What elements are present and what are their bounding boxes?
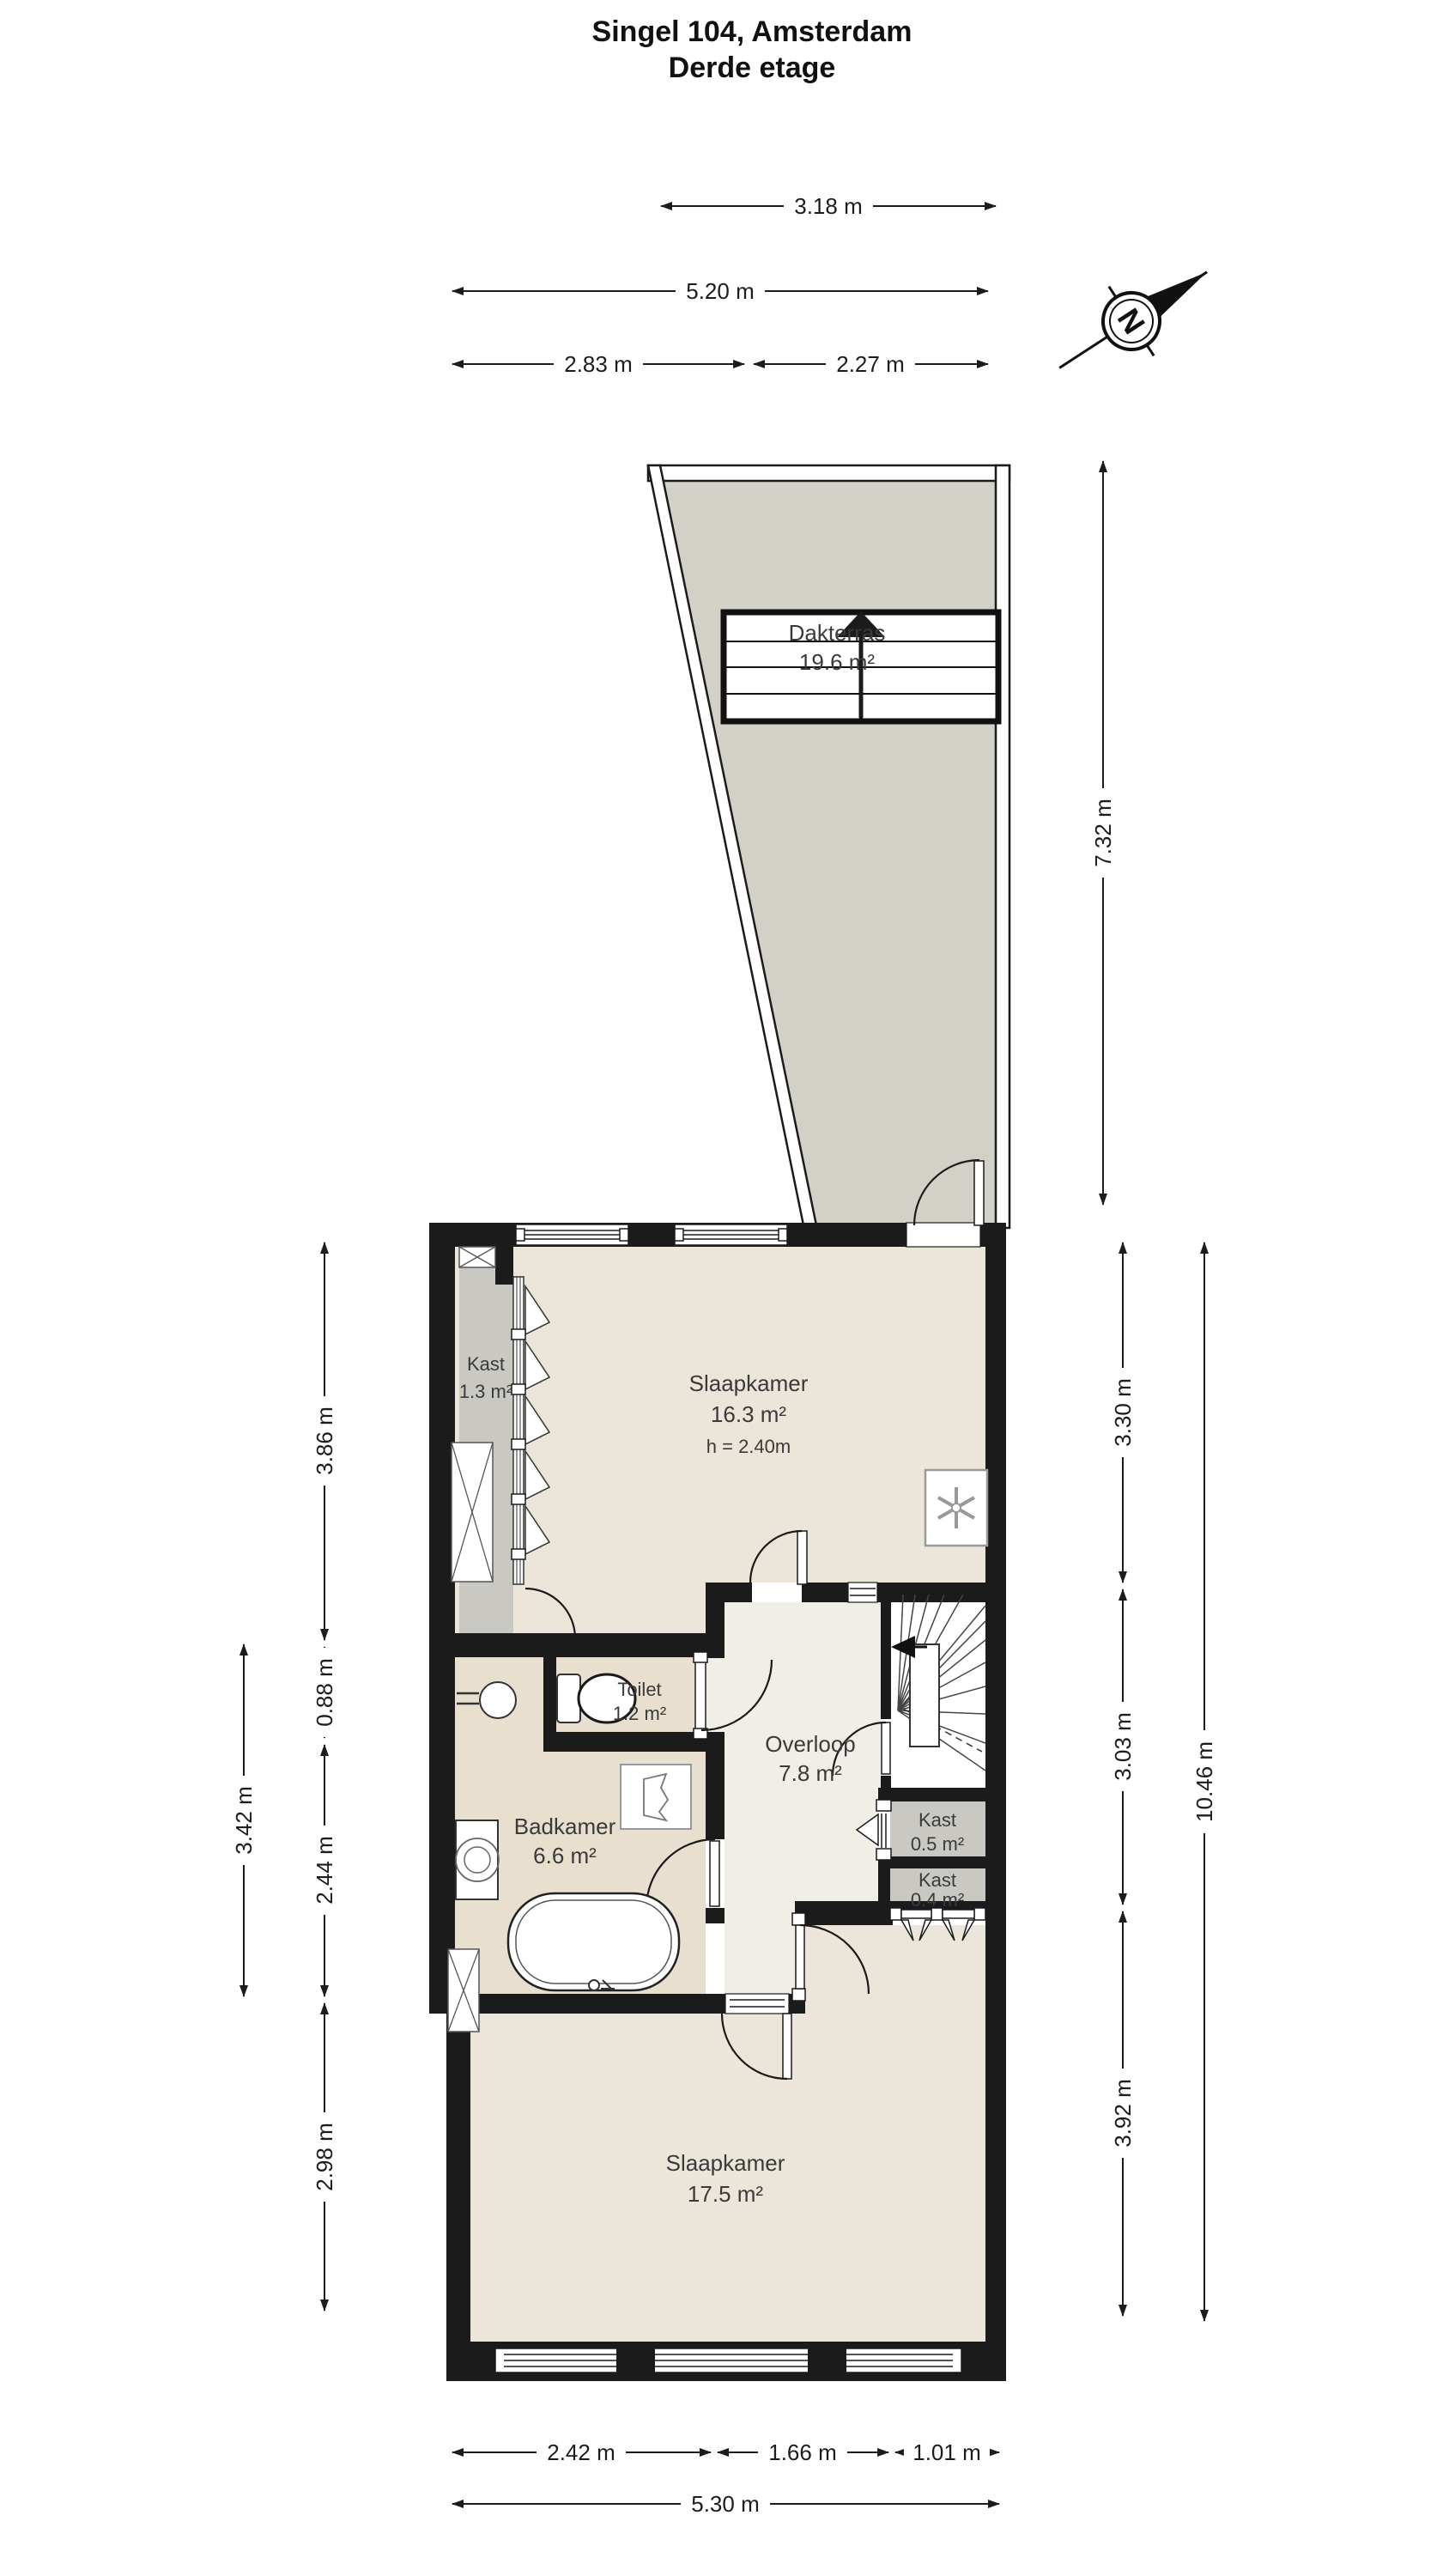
slaapkamer2-area: 17.5 m² — [688, 2181, 763, 2207]
slaapkamer1-name: Slaapkamer — [689, 1370, 809, 1396]
title-line1: Singel 104, Amsterdam — [592, 15, 912, 48]
shaft-box-top — [459, 1247, 495, 1267]
compass-icon: N — [1037, 238, 1229, 403]
room-label-kast04: Kast 0.4 m² — [911, 1869, 964, 1911]
dimension-right-1046: 10.46 m — [1190, 1242, 1219, 2321]
threshold-stairwell — [848, 1583, 877, 1602]
kast-boven-name: Kast — [467, 1353, 505, 1375]
dakterras-name: Dakterras — [789, 620, 886, 646]
window-top-a — [516, 1224, 628, 1245]
room-slaapkamer2-floor — [470, 2014, 985, 2342]
dimension-left-342: 3.42 m — [229, 1644, 258, 1996]
washer-icon — [456, 1820, 499, 1899]
dimension-top-227: 2.27 m — [754, 349, 988, 379]
window-bottom — [495, 2344, 961, 2377]
dim-left-342-label: 3.42 m — [231, 1786, 257, 1855]
floorplan-page: Singel 104, Amsterdam Derde etage N — [0, 0, 1449, 2576]
kast-boven-area: 1.3 m² — [459, 1381, 512, 1402]
page-title: Singel 104, Amsterdam Derde etage — [592, 15, 912, 84]
slaapkamer1-ceiling: h = 2.40m — [706, 1436, 791, 1457]
dimension-right-330: 3.30 m — [1108, 1242, 1137, 1583]
dimension-left-386: 3.86 m — [310, 1242, 339, 1640]
toilet-area: 1.2 m² — [613, 1703, 666, 1724]
dimension-top-318: 3.18 m — [661, 191, 996, 221]
kast05-area: 0.5 m² — [911, 1833, 964, 1855]
dim-left-386-label: 3.86 m — [312, 1406, 337, 1475]
badkamer-name: Badkamer — [514, 1814, 616, 1839]
bathtub-icon — [508, 1893, 679, 1990]
kast04-area: 0.4 m² — [911, 1889, 964, 1911]
dim-bottom-101-label: 1.01 m — [912, 2439, 981, 2465]
badkamer-area: 6.6 m² — [533, 1843, 597, 1868]
dim-top-227-label: 2.27 m — [836, 351, 905, 377]
room-dakterras-floor — [659, 481, 996, 1225]
dim-bottom-242-label: 2.42 m — [547, 2439, 615, 2465]
dimension-left-298: 2.98 m — [310, 2003, 339, 2311]
dim-right-330-label: 3.30 m — [1110, 1378, 1136, 1447]
dimension-bottom-166: 1.66 m — [718, 2438, 888, 2467]
toilet-name: Toilet — [617, 1679, 661, 1700]
slaapkamer2-name: Slaapkamer — [666, 2150, 785, 2176]
dimension-top-283: 2.83 m — [452, 349, 744, 379]
dimension-bottom-242: 2.42 m — [452, 2438, 711, 2467]
fan-icon — [925, 1470, 987, 1546]
dimension-right-732: 7.32 m — [1088, 461, 1118, 1205]
dim-right-303-label: 3.03 m — [1110, 1712, 1136, 1781]
dim-top-520-label: 5.20 m — [686, 278, 755, 304]
dim-bottom-166-label: 1.66 m — [768, 2439, 837, 2465]
dimension-left-088: 0.88 m — [310, 1647, 339, 1738]
dim-left-298-label: 2.98 m — [312, 2123, 337, 2191]
dim-left-244-label: 2.44 m — [312, 1836, 337, 1905]
floorplan-svg: Singel 104, Amsterdam Derde etage N — [0, 0, 1449, 2576]
dimension-right-303: 3.03 m — [1108, 1589, 1137, 1905]
slaapkamer1-area: 16.3 m² — [711, 1401, 786, 1427]
shaft-box-mid — [452, 1443, 493, 1582]
dim-top-283-label: 2.83 m — [564, 351, 633, 377]
dim-top-318-label: 3.18 m — [794, 193, 863, 219]
dim-right-392-label: 3.92 m — [1110, 2079, 1136, 2148]
dimension-bottom-530: 5.30 m — [452, 2489, 999, 2518]
dim-right-732-label: 7.32 m — [1090, 799, 1116, 867]
dim-left-088-label: 0.88 m — [312, 1658, 337, 1727]
dimension-left-244: 2.44 m — [310, 1745, 339, 1996]
kast04-name: Kast — [919, 1869, 956, 1891]
shower-icon — [621, 1765, 691, 1829]
kast05-name: Kast — [919, 1809, 956, 1831]
shaft-box-bottom — [448, 1949, 479, 2032]
dakterras-area: 19.6 m² — [799, 649, 875, 675]
title-line2: Derde etage — [669, 52, 836, 84]
dim-right-1046-label: 10.46 m — [1191, 1741, 1217, 1822]
dimension-top-520: 5.20 m — [452, 276, 988, 306]
overloop-area: 7.8 m² — [779, 1760, 842, 1786]
window-top-b — [675, 1224, 787, 1245]
dimension-bottom-101: 1.01 m — [895, 2438, 999, 2467]
dim-bottom-530-label: 5.30 m — [691, 2491, 760, 2517]
dimension-right-392: 3.92 m — [1108, 1911, 1137, 2316]
overloop-name: Overloop — [765, 1731, 856, 1757]
